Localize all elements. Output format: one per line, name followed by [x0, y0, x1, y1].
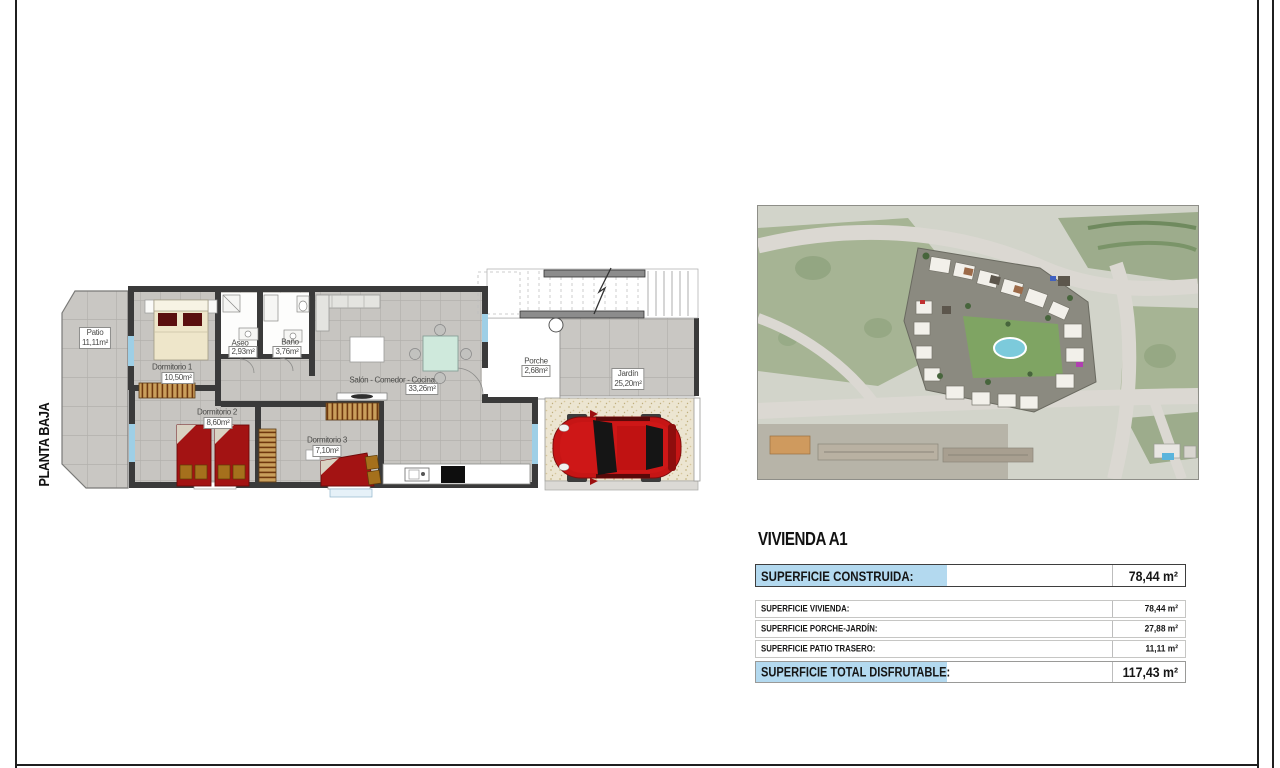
pool: [994, 338, 1026, 358]
kitchen-counter: [383, 464, 530, 484]
room-label-dormitorio2: Dormitorio 2: [197, 408, 237, 417]
room-label-dormitorio1: Dormitorio 1: [152, 363, 192, 372]
row-superficie-total: SUPERFICIE TOTAL DISFRUTABLE: 117,43 m²: [755, 661, 1186, 683]
row-value: 11,11 m²: [1145, 644, 1178, 655]
car-top-view: [553, 410, 681, 485]
column-divider: [1112, 621, 1113, 637]
room-label-patio: Patio 11,11m²: [79, 327, 111, 349]
row-label: SUPERFICIE CONSTRUIDA:: [761, 568, 913, 584]
wardrobe-dorm1: [139, 383, 195, 398]
wardrobe-hall: [259, 429, 276, 482]
column-marker: [549, 318, 563, 332]
room-area-dormitorio3: 7,10m²: [312, 445, 341, 457]
double-bed: [145, 300, 217, 360]
patio-floor: [62, 291, 128, 488]
room-area-dormitorio1: 10,50m²: [161, 372, 194, 384]
column-divider: [1112, 662, 1113, 682]
row-label: SUPERFICIE PORCHE-JARDÍN:: [761, 624, 877, 635]
row-label: SUPERFICIE TOTAL DISFRUTABLE:: [761, 665, 950, 680]
sheet-border-bottom: [15, 764, 1259, 766]
floor-name-text: PLANTA BAJA: [36, 403, 53, 487]
room-area-porche: 2,68m²: [521, 365, 550, 377]
summary-title: VIVIENDA A1: [758, 529, 864, 549]
column-divider: [1112, 641, 1113, 657]
floor-name-label: PLANTA BAJA: [36, 402, 54, 494]
sheet-border-right-inner: [1257, 0, 1259, 768]
room-area-bano: 3,76m²: [272, 346, 301, 358]
row-value: 78,44 m²: [1129, 568, 1178, 584]
row-superficie-vivienda: SUPERFICIE VIVIENDA: 78,44 m²: [755, 600, 1186, 618]
sheet-border-right-outer: [1272, 0, 1274, 768]
room-area-dormitorio2: 8,60m²: [203, 417, 232, 429]
room-label-dormitorio3: Dormitorio 3: [307, 436, 347, 445]
row-value: 78,44 m²: [1145, 604, 1178, 615]
row-superficie-construida: SUPERFICIE CONSTRUIDA: 78,44 m²: [755, 564, 1186, 587]
room-area-salon: 33,26m²: [405, 383, 438, 395]
column-divider: [1112, 601, 1113, 617]
site-aerial-photo: [757, 205, 1199, 480]
room-label-jardin: Jardín 25,20m²: [611, 368, 644, 390]
column-divider: [1112, 565, 1113, 586]
coffee-table: [350, 337, 384, 362]
row-label: SUPERFICIE VIVIENDA:: [761, 604, 849, 615]
aerial-drawing: [758, 206, 1198, 479]
row-superficie-patio-trasero: SUPERFICIE PATIO TRASERO: 11,11 m²: [755, 640, 1186, 658]
room-area-aseo: 2,93m²: [228, 346, 257, 358]
sheet-border-left: [15, 0, 17, 768]
tv-unit: [337, 393, 387, 400]
row-superficie-porche-jardin: SUPERFICIE PORCHE-JARDÍN: 27,88 m²: [755, 620, 1186, 638]
row-value: 117,43 m²: [1123, 664, 1178, 680]
row-label: SUPERFICIE PATIO TRASERO:: [761, 644, 875, 655]
wardrobe-dorm3: [326, 403, 379, 420]
row-value: 27,88 m²: [1145, 624, 1178, 635]
plan-sheet: { "page": { "side_label": "PLANTA BAJA" …: [0, 0, 1280, 768]
